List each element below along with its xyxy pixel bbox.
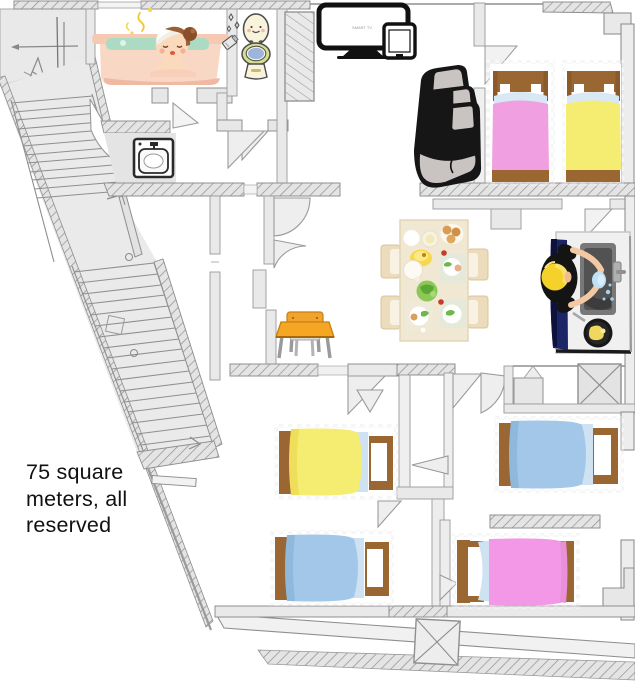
- svg-text:SMART TV: SMART TV: [352, 25, 372, 30]
